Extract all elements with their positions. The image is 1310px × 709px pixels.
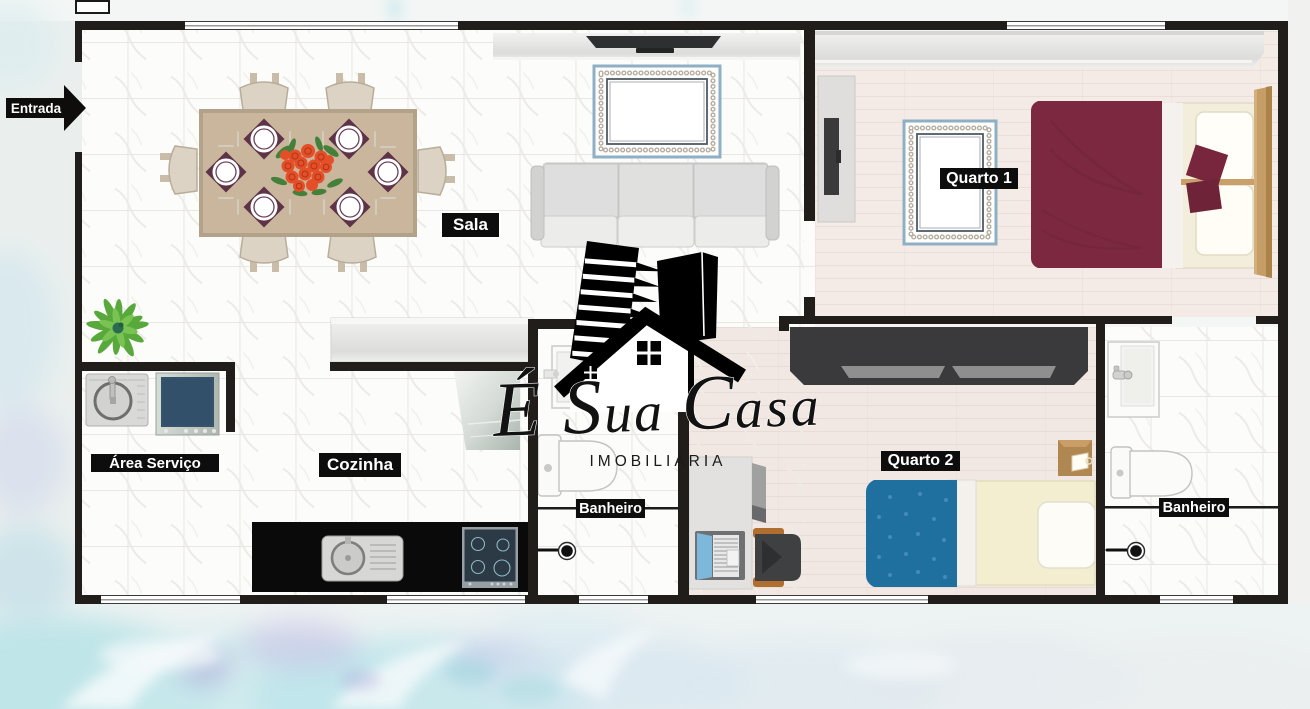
svg-text:IMOBILIÁRIA: IMOBILIÁRIA [589,453,726,470]
